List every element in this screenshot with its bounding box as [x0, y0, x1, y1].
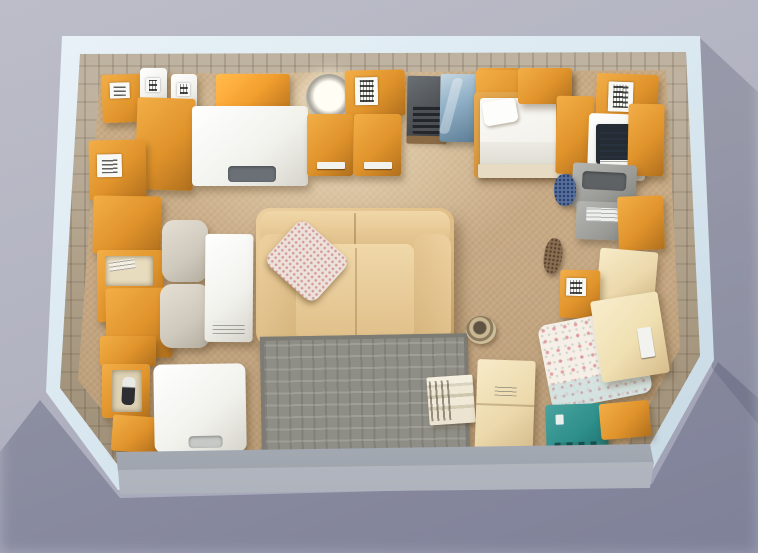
moving-box	[599, 400, 652, 440]
tall-white-box	[205, 234, 254, 342]
mini-fridge	[153, 363, 247, 453]
moving-box	[100, 336, 156, 366]
ottoman	[160, 284, 210, 348]
carton-label	[177, 83, 190, 96]
orange-cabinet	[354, 114, 401, 176]
cream-box-on-chair	[590, 291, 670, 383]
moving-box	[92, 195, 161, 254]
box-label	[109, 82, 130, 99]
moving-box	[88, 140, 146, 201]
sofa-right-arm	[413, 234, 451, 341]
bed-footboard	[478, 164, 564, 178]
box-label	[355, 77, 378, 105]
washer-top	[192, 106, 308, 186]
storage-unit-scene	[0, 0, 758, 553]
box-label	[566, 278, 586, 296]
orange-cabinet	[307, 114, 353, 176]
cabinet-handle	[317, 162, 345, 169]
washer-control-panel	[228, 166, 276, 182]
tape-strip	[637, 327, 656, 359]
book-stack	[426, 374, 475, 425]
paper-tray	[586, 207, 618, 222]
box-seam	[476, 403, 534, 407]
moving-box	[216, 74, 290, 108]
cabinet-handle	[364, 162, 392, 169]
appliance-grill	[413, 106, 441, 134]
box-label	[97, 154, 122, 177]
labeled-box	[345, 69, 406, 116]
monitor-screen	[600, 128, 628, 158]
bottle	[121, 377, 135, 406]
moving-box	[617, 195, 665, 251]
printer-vent	[582, 171, 627, 191]
bottle-box	[102, 364, 150, 418]
ottoman	[162, 220, 208, 282]
tape-mark	[494, 386, 516, 397]
computer-monitor	[596, 124, 632, 164]
carton-label	[146, 78, 160, 92]
blue-fabric-bundle	[554, 174, 576, 206]
fridge-vent	[188, 436, 222, 449]
bin-label	[555, 414, 563, 424]
wicker-basket	[466, 316, 496, 344]
cream-box-front	[474, 359, 535, 461]
sofa-cushion-seam	[354, 213, 356, 245]
sofa-seat-seam	[355, 248, 357, 336]
box-print	[213, 322, 245, 334]
moving-box	[111, 414, 159, 453]
sofa	[256, 208, 454, 346]
